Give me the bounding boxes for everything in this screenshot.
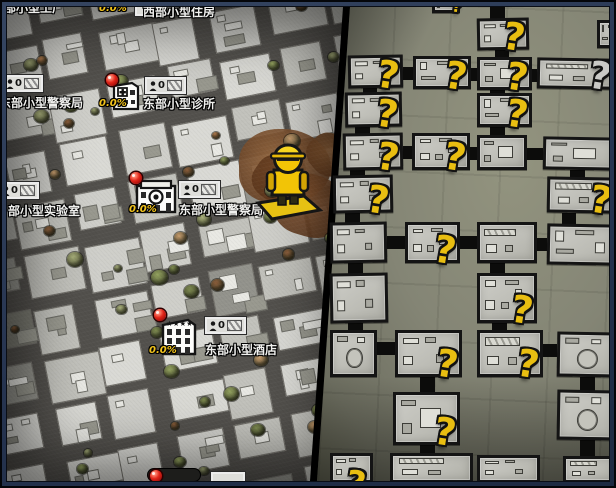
furniture xyxy=(337,229,350,235)
tree xyxy=(296,7,307,11)
badge-stripes xyxy=(24,78,39,89)
furniture xyxy=(575,230,594,235)
building-roof-detail xyxy=(22,221,34,232)
building-roof-detail xyxy=(149,254,163,271)
corridor-connector xyxy=(527,148,543,160)
furniture xyxy=(349,458,356,461)
furniture xyxy=(485,76,493,82)
red-pin-icon xyxy=(106,74,118,86)
building-roof-detail xyxy=(196,75,219,93)
furniture xyxy=(350,140,364,145)
tree xyxy=(44,226,55,236)
person-icon xyxy=(183,185,191,195)
furniture xyxy=(546,63,588,69)
furniture xyxy=(553,156,564,162)
partial-badge xyxy=(211,472,245,481)
furniture xyxy=(484,99,491,108)
loot-percent: 0.0% xyxy=(129,204,157,215)
furniture xyxy=(337,244,345,253)
furniture xyxy=(485,470,494,475)
furniture xyxy=(360,181,370,186)
building-roof-detail xyxy=(159,26,169,34)
tree xyxy=(268,61,278,70)
tree xyxy=(77,464,88,474)
building-roof-detail xyxy=(184,295,207,314)
survivor-count-badge: 0 xyxy=(179,181,220,198)
building-roof-detail xyxy=(210,142,223,157)
furniture xyxy=(435,154,443,160)
furniture xyxy=(484,229,515,237)
furniture xyxy=(570,461,597,466)
building-roof-detail xyxy=(87,469,100,481)
furniture xyxy=(484,155,491,161)
room[interactable] xyxy=(597,20,609,48)
survivor-count: 0 xyxy=(158,81,165,91)
furniture xyxy=(346,348,362,369)
building-block xyxy=(279,41,327,87)
room[interactable] xyxy=(563,456,609,481)
furniture xyxy=(437,7,441,8)
furniture xyxy=(428,470,440,475)
furniture xyxy=(555,183,592,190)
furniture xyxy=(336,469,342,475)
corridor-connector xyxy=(403,146,412,159)
svg-text:★★★★: ★★★★ xyxy=(166,319,193,328)
corridor-connector xyxy=(543,344,557,357)
tree xyxy=(151,270,168,285)
furniture xyxy=(403,338,419,345)
furniture xyxy=(484,24,496,28)
building-block xyxy=(233,416,286,459)
tree xyxy=(164,365,179,378)
building-roof-detail xyxy=(291,104,300,112)
building-roof-detail xyxy=(300,368,317,385)
corridor-connector xyxy=(377,342,395,355)
building-roof-detail xyxy=(66,41,84,51)
furniture xyxy=(355,61,368,66)
tree xyxy=(211,279,224,291)
poi-label: 东部小型诊所 xyxy=(143,95,215,112)
furniture xyxy=(421,76,436,80)
building-block xyxy=(118,122,174,177)
building-roof-detail xyxy=(111,353,124,364)
tree xyxy=(24,59,37,71)
furniture xyxy=(484,141,495,145)
furniture xyxy=(336,459,346,463)
furniture xyxy=(485,461,500,465)
tree xyxy=(328,52,339,62)
building-block xyxy=(7,412,45,456)
building-block xyxy=(7,463,50,481)
furniture xyxy=(484,63,496,67)
building-block xyxy=(258,257,317,301)
poi-label: 西部小型住房 xyxy=(143,7,215,20)
furniture xyxy=(549,74,563,80)
furniture xyxy=(602,25,605,32)
building-roof-detail xyxy=(127,455,138,464)
furniture xyxy=(420,153,429,160)
room[interactable] xyxy=(547,223,609,265)
red-pin-icon xyxy=(154,309,166,321)
building-roof-detail xyxy=(293,277,303,291)
furniture xyxy=(579,197,589,203)
room[interactable] xyxy=(477,455,540,481)
building-block xyxy=(139,222,192,273)
furniture xyxy=(572,471,581,476)
tree xyxy=(200,397,211,406)
furniture xyxy=(551,142,567,146)
building-roof-detail xyxy=(206,227,226,246)
building-roof-detail xyxy=(7,266,24,283)
furniture xyxy=(365,243,372,250)
building-roof-detail xyxy=(7,322,8,331)
corridor-connector xyxy=(537,238,547,251)
building-roof-detail xyxy=(133,300,153,312)
building-block xyxy=(7,362,39,407)
room[interactable] xyxy=(330,330,377,377)
building-roof-detail xyxy=(71,150,83,160)
building-roof-detail xyxy=(143,144,161,159)
room[interactable] xyxy=(477,222,537,263)
tree xyxy=(34,110,49,123)
room[interactable] xyxy=(477,135,527,170)
furniture xyxy=(350,153,359,161)
building-block xyxy=(74,187,123,231)
furniture xyxy=(484,36,491,42)
furniture xyxy=(340,196,349,204)
building-block xyxy=(98,339,147,387)
building-block xyxy=(209,7,262,54)
furniture xyxy=(337,281,351,288)
tree xyxy=(169,265,179,274)
tree xyxy=(199,467,209,476)
person-icon xyxy=(149,81,157,91)
badge-stripes xyxy=(201,184,216,195)
furniture xyxy=(403,356,413,366)
corridor-connector xyxy=(387,236,405,249)
furniture xyxy=(340,182,354,187)
building-roof-detail xyxy=(11,474,22,481)
furniture xyxy=(555,230,564,241)
corridor-connector xyxy=(470,147,477,160)
furniture xyxy=(420,62,427,71)
building-roof-detail xyxy=(116,32,127,45)
building-block xyxy=(55,401,103,446)
map-view: 部小型工厂0.0%西部小型住房 0东部小型警察局 00.0%东部小型诊所 00.… xyxy=(7,7,609,481)
furniture xyxy=(485,337,520,346)
building-roof-detail xyxy=(284,7,298,12)
building-roof-detail xyxy=(280,319,296,333)
furniture xyxy=(501,302,510,310)
building-roof-detail xyxy=(50,266,67,280)
furniture xyxy=(505,280,519,285)
furniture xyxy=(357,337,365,343)
building-roof-detail xyxy=(114,399,124,408)
furniture xyxy=(487,356,499,366)
person-icon xyxy=(209,321,217,331)
furniture xyxy=(337,300,345,311)
furniture xyxy=(370,139,380,143)
building-block xyxy=(41,32,89,80)
furniture xyxy=(399,458,444,463)
furniture xyxy=(577,409,599,431)
player-base-triangle xyxy=(258,196,320,219)
furniture xyxy=(515,469,523,473)
loot-percent: 0.0% xyxy=(99,98,127,109)
player-marker xyxy=(250,141,324,227)
tree xyxy=(183,167,194,177)
room[interactable] xyxy=(390,453,473,481)
building-roof-detail xyxy=(61,7,83,17)
building-roof-detail xyxy=(180,128,190,136)
building-roof-detail xyxy=(124,39,141,53)
building-roof-detail xyxy=(101,271,115,282)
building-roof-detail xyxy=(221,184,241,200)
furniture xyxy=(505,245,514,252)
tree xyxy=(212,132,220,139)
building-roof-detail xyxy=(224,21,243,32)
furniture xyxy=(425,337,436,343)
survivor-count: 0 xyxy=(15,79,22,89)
loot-percent: 0.0% xyxy=(149,345,177,356)
furniture xyxy=(591,339,602,345)
furniture xyxy=(413,244,422,252)
furniture xyxy=(485,300,495,310)
poi-label: 东部小型酒店 xyxy=(205,341,277,358)
corridor-connector xyxy=(580,377,595,391)
room[interactable] xyxy=(557,389,609,440)
furniture xyxy=(508,357,518,365)
building-block xyxy=(44,351,108,405)
building-roof-detail xyxy=(20,418,30,426)
tree xyxy=(224,387,239,400)
survivor-count-badge: 0 xyxy=(145,77,186,94)
room[interactable] xyxy=(330,272,389,323)
building-roof-detail xyxy=(75,379,88,394)
badge-stripes xyxy=(20,185,35,196)
furniture xyxy=(608,25,609,28)
red-pin-icon xyxy=(150,470,162,481)
building-roof-detail xyxy=(236,71,256,85)
loot-percent: 0.0% xyxy=(99,7,127,14)
furniture xyxy=(402,423,412,433)
building-roof-detail xyxy=(216,15,226,23)
corridor-connector xyxy=(460,236,477,249)
poi-label: 部小型工厂 xyxy=(7,7,64,16)
furniture xyxy=(588,471,596,475)
building-block xyxy=(7,257,21,299)
furniture xyxy=(365,299,372,308)
building-roof-detail xyxy=(7,435,19,444)
tree xyxy=(37,56,47,65)
building-block xyxy=(33,303,81,355)
tree xyxy=(174,232,187,244)
person-icon xyxy=(7,186,10,196)
furniture xyxy=(577,349,599,369)
building-block xyxy=(219,53,276,101)
furniture xyxy=(565,338,579,344)
building-block xyxy=(106,388,156,440)
furniture xyxy=(505,460,515,463)
window-frame: 部小型工厂0.0%西部小型住房 0东部小型警察局 00.0%东部小型诊所 00.… xyxy=(2,2,614,486)
survivor-count: 0 xyxy=(192,185,199,195)
building-roof-detail xyxy=(205,443,220,454)
building-roof-detail xyxy=(299,58,317,72)
furniture xyxy=(355,73,363,80)
furniture xyxy=(498,146,513,158)
furniture xyxy=(402,469,417,475)
furniture xyxy=(485,113,499,117)
survivor-count: 0 xyxy=(218,321,225,331)
tree xyxy=(11,326,19,333)
badge-stripes xyxy=(227,320,242,331)
room[interactable] xyxy=(330,222,388,264)
tree xyxy=(116,305,126,314)
building-block xyxy=(152,16,201,67)
building-roof-detail xyxy=(7,424,14,433)
furniture xyxy=(573,147,596,159)
building-roof-detail xyxy=(101,203,121,221)
building-roof-detail xyxy=(75,475,87,481)
furniture xyxy=(591,397,602,403)
building-block xyxy=(267,7,329,35)
poi-label: 东部小型警察局 xyxy=(7,94,83,111)
furniture xyxy=(356,280,365,286)
survivor-count-badge: 0 xyxy=(7,75,43,92)
furniture xyxy=(352,99,365,104)
building-roof-detail xyxy=(264,269,273,277)
furniture xyxy=(401,400,416,407)
building-roof-detail xyxy=(240,385,255,397)
corridor-connector xyxy=(403,67,413,80)
building-roof-detail xyxy=(82,204,100,222)
furniture xyxy=(337,336,348,342)
room[interactable] xyxy=(543,136,609,170)
badge-stripes xyxy=(167,80,182,91)
furniture xyxy=(557,196,570,203)
furniture xyxy=(420,139,430,143)
survivor-count-badge: 0 xyxy=(7,182,39,199)
tree xyxy=(171,422,179,430)
furniture xyxy=(355,228,364,233)
building-roof-detail xyxy=(224,33,246,47)
building-block xyxy=(247,473,298,481)
furniture xyxy=(573,75,585,80)
survivor-count: 0 xyxy=(11,186,18,196)
person-icon xyxy=(7,79,14,89)
building-roof-detail xyxy=(16,327,39,345)
building-block xyxy=(59,136,114,188)
corridor-connector xyxy=(580,440,595,457)
building-roof-detail xyxy=(76,427,91,444)
building-block xyxy=(168,379,229,422)
red-pin-icon xyxy=(130,172,142,184)
tree xyxy=(251,424,265,437)
game-window: 部小型工厂0.0%西部小型住房 0东部小型警察局 00.0%东部小型诊所 00.… xyxy=(0,0,616,488)
furniture xyxy=(566,396,580,402)
furniture xyxy=(352,111,360,118)
tree xyxy=(283,249,295,259)
tree xyxy=(84,449,92,457)
tree xyxy=(67,252,84,267)
room[interactable] xyxy=(557,331,609,377)
building-roof-detail xyxy=(321,104,332,113)
building-roof-detail xyxy=(61,51,79,66)
furniture xyxy=(602,37,608,40)
furniture xyxy=(556,248,574,253)
partial-poi-marker xyxy=(148,469,200,481)
furniture xyxy=(413,229,423,234)
furniture xyxy=(485,280,496,286)
poi-label: 部小型实验室 xyxy=(8,202,80,219)
survivor-count-badge: 0 xyxy=(205,317,246,334)
furniture xyxy=(595,242,605,253)
furniture xyxy=(486,244,497,252)
building-block xyxy=(94,290,154,340)
room-map[interactable]: ?????????????????? xyxy=(302,7,609,481)
